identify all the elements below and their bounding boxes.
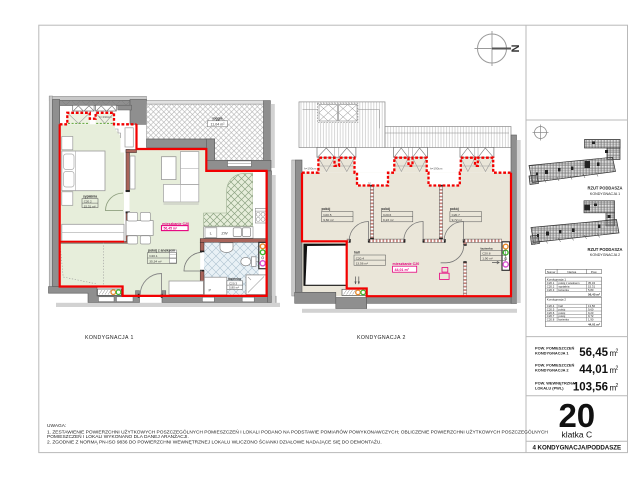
svg-text:h=190cm: h=190cm xyxy=(430,167,443,171)
svg-text:KONDYGNACJA 2: KONDYGNACJA 2 xyxy=(535,368,569,373)
svg-text:1,90: 1,90 xyxy=(588,318,594,322)
svg-text:h=190cm: h=190cm xyxy=(99,115,112,119)
svg-text:5,80 m²: 5,80 m² xyxy=(229,286,239,290)
svg-text:2: 2 xyxy=(616,383,619,389)
svg-text:KONDYGNACJA 1: KONDYGNACJA 1 xyxy=(535,351,569,356)
svg-text:KONDYGNACJA 2: KONDYGNACJA 2 xyxy=(357,335,406,341)
svg-text:UWAGA:: UWAGA: xyxy=(47,423,66,429)
svg-text:20: 20 xyxy=(558,397,595,434)
svg-text:56,45: 56,45 xyxy=(579,347,608,359)
svg-text:KONDYGNACJA 1: KONDYGNACJA 1 xyxy=(85,335,134,341)
svg-text:9,23 m²: 9,23 m² xyxy=(383,218,394,222)
svg-text:Pow.: Pow. xyxy=(591,270,598,274)
svg-text:pokój: pokój xyxy=(322,207,331,211)
svg-text:łazienka: łazienka xyxy=(481,246,493,250)
svg-text:hall: hall xyxy=(354,251,360,255)
svg-text:103,56: 103,56 xyxy=(573,382,608,394)
svg-text:N: N xyxy=(509,45,521,53)
svg-text:C20.1: C20.1 xyxy=(149,254,158,258)
svg-text:C20.3: C20.3 xyxy=(547,288,555,292)
svg-text:LOKALU (PWL): LOKALU (PWL) xyxy=(535,386,564,391)
svg-text:KONDYGNACJA 1: KONDYGNACJA 1 xyxy=(590,192,620,196)
svg-text:pokój: pokój xyxy=(450,207,459,211)
svg-text:KONDYGNACJA 2: KONDYGNACJA 2 xyxy=(590,253,620,257)
svg-text:łazienka: łazienka xyxy=(559,318,570,322)
svg-text:C20.7: C20.7 xyxy=(452,213,461,217)
svg-text:RZUT PODDASZA: RZUT PODDASZA xyxy=(587,186,622,191)
svg-text:Numer: Numer xyxy=(547,270,556,274)
svg-text:C20.6: C20.6 xyxy=(383,213,392,217)
svg-text:loggia: loggia xyxy=(213,117,223,121)
svg-text:C20.5: C20.5 xyxy=(323,213,332,217)
svg-text:1,90 m²: 1,90 m² xyxy=(482,257,493,261)
svg-text:35,34 m²: 35,34 m² xyxy=(149,259,161,263)
svg-text:C20.4: C20.4 xyxy=(356,256,365,260)
svg-text:15,31 m²: 15,31 m² xyxy=(84,204,96,208)
svg-text:P: P xyxy=(209,288,212,293)
svg-text:mieszkanie C20: mieszkanie C20 xyxy=(393,262,420,266)
svg-text:2: 2 xyxy=(616,366,619,372)
svg-text:56,45 m²: 56,45 m² xyxy=(164,227,178,231)
svg-text:pokój: pokój xyxy=(381,207,390,211)
svg-text:C20.2: C20.2 xyxy=(84,199,92,203)
svg-text:13,56 m²: 13,56 m² xyxy=(356,261,368,265)
svg-text:9,60 m²: 9,60 m² xyxy=(323,218,334,222)
svg-text:łazienka: łazienka xyxy=(559,288,570,292)
svg-text:Kondygnacja 2: Kondygnacja 2 xyxy=(547,298,567,302)
svg-text:56,45 m²: 56,45 m² xyxy=(588,292,600,296)
svg-text:Nazwa: Nazwa xyxy=(567,270,576,274)
svg-text:44,01: 44,01 xyxy=(579,364,608,376)
svg-text:2: 2 xyxy=(616,349,619,355)
svg-text:pokój z aneksem: pokój z aneksem xyxy=(148,249,175,253)
svg-text:44,01 m²: 44,01 m² xyxy=(395,268,410,272)
svg-text:C20.8: C20.8 xyxy=(482,252,491,256)
svg-text:sypialnia: sypialnia xyxy=(83,195,97,199)
svg-text:11,04 m²: 11,04 m² xyxy=(211,122,226,126)
svg-text:POMIESZCZEŃ I LOKALI WYKONANO: POMIESZCZEŃ I LOKALI WYKONANO DLA DANEJ … xyxy=(47,433,189,440)
svg-text:łazienka: łazienka xyxy=(228,277,241,281)
svg-text:h=190cm: h=190cm xyxy=(304,167,317,171)
svg-text:klatka C: klatka C xyxy=(561,430,592,440)
svg-text:C20.8: C20.8 xyxy=(547,318,555,322)
svg-text:4 KONDYGNACJA/PODDASZE: 4 KONDYGNACJA/PODDASZE xyxy=(532,445,621,452)
svg-text:44,01 m²: 44,01 m² xyxy=(588,322,600,326)
svg-text:RZUT PODDASZA: RZUT PODDASZA xyxy=(587,247,622,252)
svg-text:9,72 m²: 9,72 m² xyxy=(452,218,463,222)
svg-text:ZW: ZW xyxy=(221,231,227,236)
